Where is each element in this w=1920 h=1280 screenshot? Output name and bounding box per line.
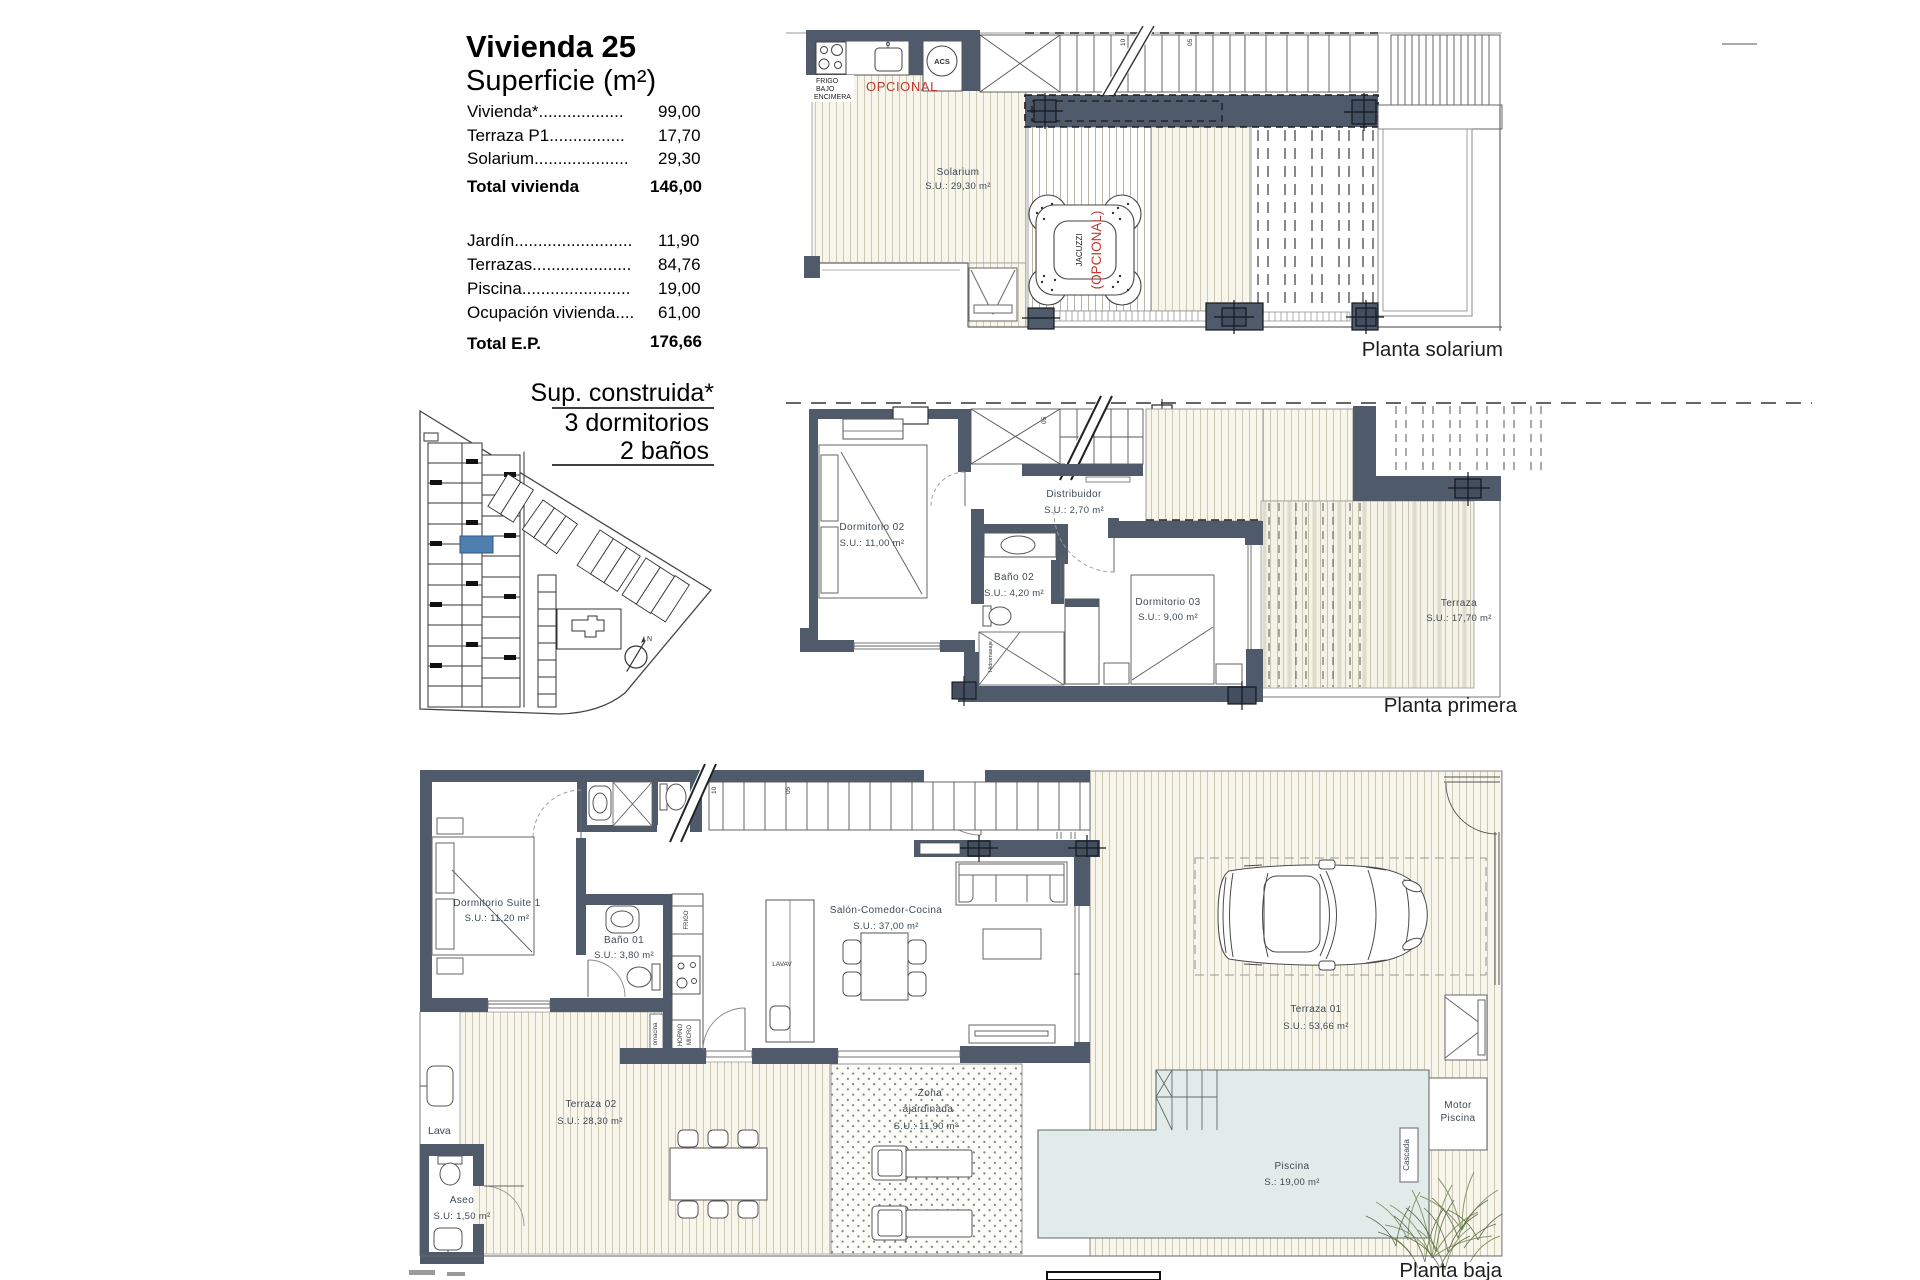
svg-text:Jardín........................: Jardín.........................	[467, 231, 632, 250]
svg-text:OPCIONAL: OPCIONAL	[866, 79, 938, 94]
svg-text:Solarium....................: Solarium....................	[467, 149, 629, 168]
svg-text:84,76: 84,76	[658, 255, 701, 274]
svg-text:Planta solarium: Planta solarium	[1362, 338, 1503, 361]
svg-text:Distribuidor: Distribuidor	[1046, 489, 1102, 500]
svg-text:S.U.: 11,00 m²: S.U.: 11,00 m²	[840, 538, 905, 549]
svg-text:S.U.: 11,90 m²: S.U.: 11,90 m²	[894, 1121, 959, 1132]
svg-text:S.U.: 3,80 m²: S.U.: 3,80 m²	[594, 950, 654, 961]
svg-text:Salón-Comedor-Cocina: Salón-Comedor-Cocina	[830, 905, 943, 916]
svg-text:3 dormitorios: 3 dormitorios	[565, 409, 710, 437]
svg-text:LAVAV: LAVAV	[772, 961, 792, 968]
svg-text:S.U: 1,50 m²: S.U: 1,50 m²	[434, 1211, 491, 1222]
svg-text:29,30: 29,30	[658, 149, 701, 168]
svg-text:Total vivienda: Total vivienda	[467, 177, 580, 196]
svg-text:BAJO: BAJO	[816, 86, 835, 93]
svg-text:S.: 19,00 m²: S.: 19,00 m²	[1264, 1177, 1319, 1188]
svg-text:HORNO: HORNO	[678, 1024, 684, 1047]
svg-text:176,66: 176,66	[650, 332, 702, 351]
svg-text:Planta baja: Planta baja	[1399, 1259, 1502, 1280]
svg-text:Sup. construida*: Sup. construida*	[531, 379, 715, 407]
svg-text:Solarium: Solarium	[937, 167, 980, 178]
svg-text:Piscina: Piscina	[1440, 1113, 1475, 1124]
svg-text:Aseo: Aseo	[450, 1195, 474, 1206]
svg-text:Terraza P1................: Terraza P1................	[467, 126, 625, 145]
svg-text:Baño 01: Baño 01	[604, 935, 644, 946]
svg-text:99,00: 99,00	[658, 102, 701, 121]
svg-text:Piscina: Piscina	[1274, 1161, 1309, 1172]
svg-text:Vivienda 25: Vivienda 25	[466, 29, 636, 64]
svg-text:11,90: 11,90	[658, 231, 699, 250]
svg-text:2 baños: 2 baños	[620, 437, 709, 465]
svg-text:FRIGO: FRIGO	[816, 78, 839, 85]
svg-text:S.U.: 28,30 m²: S.U.: 28,30 m²	[557, 1116, 622, 1127]
svg-text:ACS: ACS	[934, 57, 950, 66]
svg-text:Dormitorio Suite 1: Dormitorio Suite 1	[453, 898, 540, 909]
svg-text:17,70: 17,70	[658, 126, 701, 145]
svg-text:S.U.: 53,66 m²: S.U.: 53,66 m²	[1283, 1021, 1348, 1032]
svg-text:FRIGO: FRIGO	[684, 910, 690, 929]
svg-text:ENCIMERA: ENCIMERA	[814, 94, 851, 101]
svg-text:61,00: 61,00	[658, 303, 701, 322]
svg-text:146,00: 146,00	[650, 177, 702, 196]
svg-text:S.U.: 17,70 m²: S.U.: 17,70 m²	[1426, 613, 1491, 624]
svg-text:S.U.: 37,00 m²: S.U.: 37,00 m²	[853, 921, 918, 932]
svg-text:MICRO: MICRO	[687, 1025, 693, 1045]
svg-text:Zona: Zona	[918, 1088, 942, 1099]
svg-text:ajardinada: ajardinada	[903, 1104, 954, 1115]
svg-text:Baño 02: Baño 02	[994, 572, 1034, 583]
svg-text:Piscina.......................: Piscina.......................	[467, 279, 630, 298]
svg-text:Vivienda*..................: Vivienda*..................	[467, 102, 624, 121]
svg-text:S.U.: 29,30 m²: S.U.: 29,30 m²	[925, 181, 990, 192]
svg-text:Terraza: Terraza	[1441, 598, 1477, 609]
svg-text:Superficie (m²): Superficie (m²)	[466, 65, 656, 97]
svg-text:Terraza 02: Terraza 02	[565, 1099, 616, 1110]
svg-text:Terraza 01: Terraza 01	[1290, 1004, 1341, 1015]
svg-text:S.U.: 4,20 m²: S.U.: 4,20 m²	[984, 588, 1044, 599]
svg-text:10: 10	[711, 786, 718, 794]
svg-text:Dormitorio 03: Dormitorio 03	[1135, 597, 1200, 608]
svg-text:05: 05	[785, 786, 792, 794]
svg-text:05: 05	[1041, 416, 1048, 424]
svg-text:(OPCIONAL): (OPCIONAL)	[1089, 211, 1104, 290]
svg-text:S.U.: 2,70 m²: S.U.: 2,70 m²	[1044, 505, 1104, 516]
svg-text:Ocupación vivienda....: Ocupación vivienda....	[467, 303, 634, 322]
svg-text:S.U.: 9,00 m²: S.U.: 9,00 m²	[1138, 612, 1198, 623]
svg-text:Planta primera: Planta primera	[1384, 694, 1518, 717]
svg-text:N: N	[647, 636, 652, 643]
svg-text:Hidromasaje: Hidromasaje	[988, 641, 994, 672]
svg-text:Terrazas.....................: Terrazas.....................	[467, 255, 631, 274]
svg-text:Cascada: Cascada	[1402, 1139, 1411, 1171]
svg-text:05: 05	[1187, 38, 1194, 46]
svg-text:Total E.P.: Total E.P.	[467, 334, 541, 353]
svg-text:omacina: omacina	[653, 1022, 659, 1045]
svg-text:Motor: Motor	[1444, 1100, 1472, 1111]
svg-text:S.U.: 11,20 m²: S.U.: 11,20 m²	[465, 913, 530, 924]
svg-text:Lava: Lava	[428, 1125, 451, 1137]
svg-text:19,00: 19,00	[658, 279, 701, 298]
svg-text:10: 10	[1120, 38, 1127, 46]
svg-text:Dormitorio 02: Dormitorio 02	[839, 522, 904, 533]
svg-text:JACUZZI: JACUZZI	[1075, 234, 1084, 267]
